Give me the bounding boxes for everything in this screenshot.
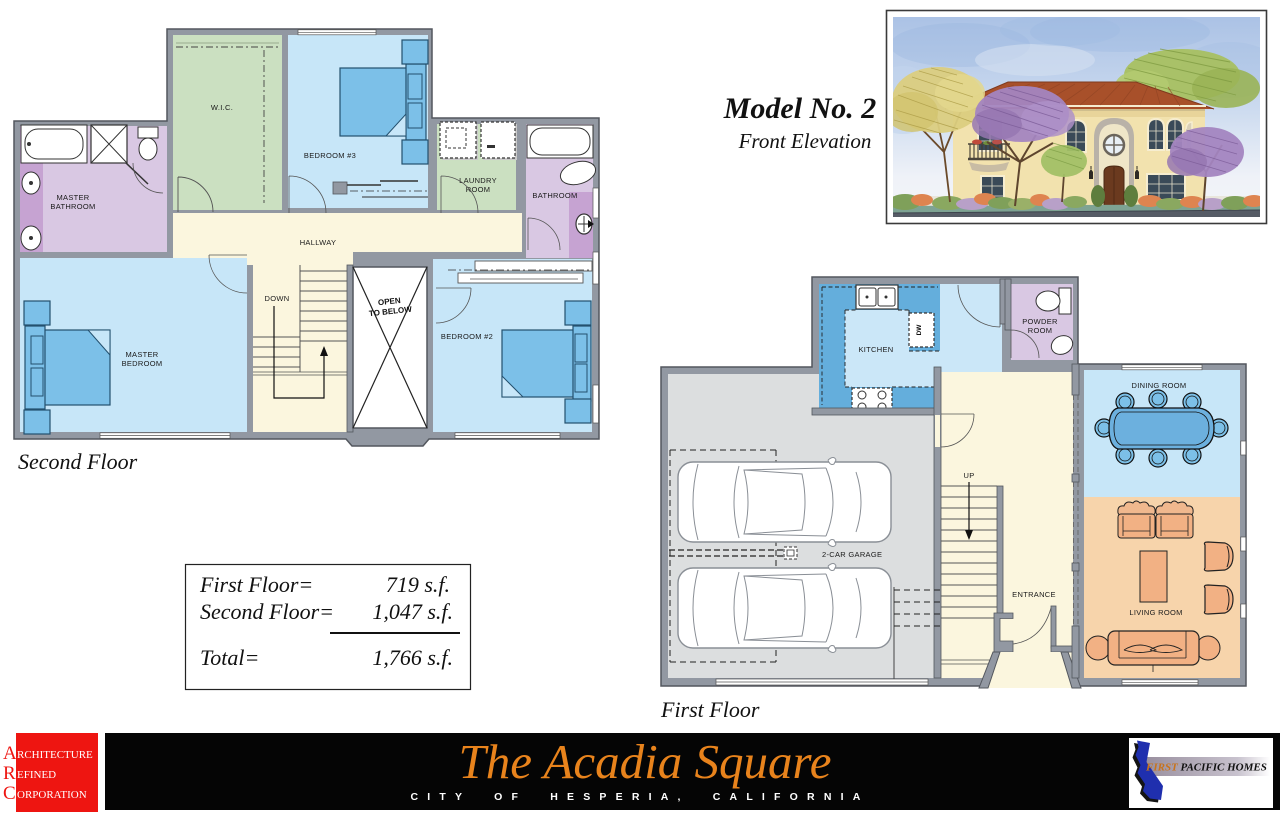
svg-text:A: A [3,743,17,764]
svg-text:1,047 s.f.: 1,047 s.f. [372,599,453,624]
svg-text:LAUNDRY: LAUNDRY [459,176,497,185]
svg-text:MASTER: MASTER [56,193,89,202]
svg-text:Second Floor: Second Floor [18,449,138,474]
svg-text:POWDER: POWDER [1022,317,1058,326]
svg-text:C: C [3,783,16,804]
svg-text:DINING ROOM: DINING ROOM [1132,381,1187,390]
svg-text:BATHROOM: BATHROOM [50,202,95,211]
svg-text:BATHROOM: BATHROOM [532,191,577,200]
svg-text:HALLWAY: HALLWAY [300,238,337,247]
svg-text:R: R [3,763,16,784]
svg-text:Model No. 2: Model No. 2 [723,92,877,125]
svg-text:UP: UP [963,471,974,480]
svg-text:Second Floor=: Second Floor= [200,599,334,624]
svg-text:DW: DW [916,324,923,336]
svg-text:MASTER: MASTER [125,350,158,359]
svg-text:First Floor=: First Floor= [199,572,313,597]
svg-text:First Floor: First Floor [660,697,760,722]
svg-text:Front Elevation: Front Elevation [738,129,872,153]
svg-text:EFINED: EFINED [17,769,56,781]
svg-text:CITY OF HESPERIA, CALIFORNIA: CITY OF HESPERIA, CALIFORNIA [411,791,870,803]
svg-text:ENTRANCE: ENTRANCE [1012,590,1056,599]
svg-text:DOWN: DOWN [265,294,290,303]
svg-text:ORPORATION: ORPORATION [17,789,87,801]
svg-text:KITCHEN: KITCHEN [858,345,893,354]
svg-text:719 s.f.: 719 s.f. [386,572,450,597]
svg-text:BEDROOM #3: BEDROOM #3 [304,151,356,160]
svg-text:BEDROOM: BEDROOM [122,359,163,368]
svg-text:Total=: Total= [200,645,259,670]
svg-text:RCHITECTURE: RCHITECTURE [17,749,93,761]
svg-text:FIRST PACIFIC HOMES: FIRST PACIFIC HOMES [1145,762,1267,774]
svg-text:The Acadia Square: The Acadia Square [459,734,832,789]
svg-text:ROOM: ROOM [1028,326,1053,335]
svg-text:2-CAR GARAGE: 2-CAR GARAGE [822,550,882,559]
svg-text:BEDROOM #2: BEDROOM #2 [441,332,493,341]
svg-text:W.I.C.: W.I.C. [211,103,233,112]
svg-text:LIVING ROOM: LIVING ROOM [1129,608,1182,617]
svg-text:1,766 s.f.: 1,766 s.f. [372,645,453,670]
